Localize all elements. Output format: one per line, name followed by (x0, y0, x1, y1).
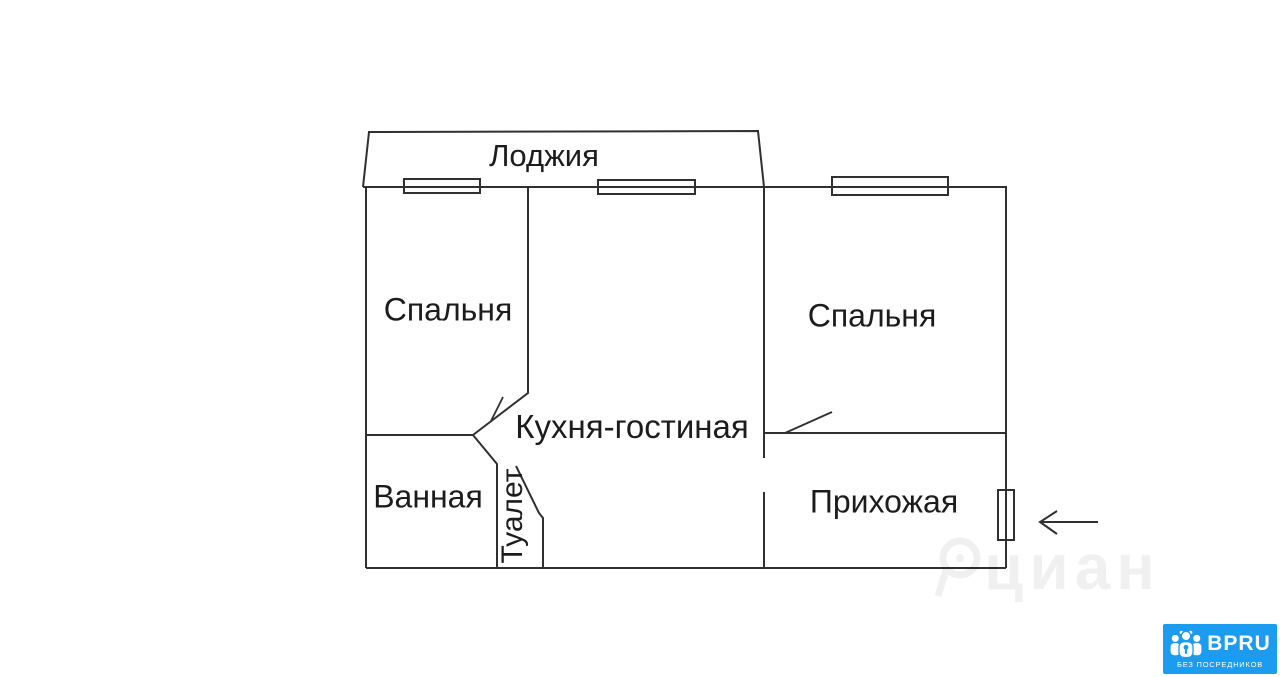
room-label-hallway: Прихожая (810, 484, 958, 521)
room-label-kitchen-living: Кухня-гостиная (515, 408, 748, 446)
floorplan-page: Лоджия Спальня Спальня Кухня-гостиная Ва… (0, 0, 1280, 677)
bpru-badge-row: BPRU (1169, 630, 1271, 658)
floorplan-canvas (0, 0, 1280, 677)
room-label-bedroom-right: Спальня (808, 298, 937, 335)
entrance-arrow-icon (1040, 511, 1098, 534)
bpru-brand-text: BPRU (1207, 633, 1271, 654)
bpru-badge: BPRU БЕЗ ПОСРЕДНИКОВ (1163, 624, 1277, 674)
room-label-loggia: Лоджия (489, 138, 599, 174)
room-label-toilet: Туалет (496, 469, 530, 564)
room-label-bathroom: Ванная (373, 479, 483, 516)
room-label-bedroom-left: Спальня (384, 292, 513, 329)
bpru-tagline-text: БЕЗ ПОСРЕДНИКОВ (1177, 661, 1263, 669)
bedroom-right-door-leaf (785, 412, 832, 433)
people-group-icon (1169, 630, 1203, 658)
